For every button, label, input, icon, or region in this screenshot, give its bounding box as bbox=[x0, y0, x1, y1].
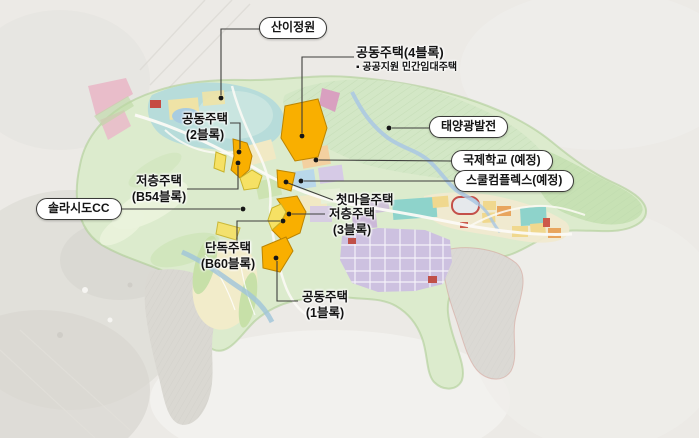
label-apt-block2: 공동주택 (2블록) bbox=[179, 112, 231, 143]
label-low-rise-3-line1: 저층주택 bbox=[326, 207, 378, 223]
label-apt-block1-line1: 공동주택 bbox=[299, 290, 351, 306]
label-solar-power: 태양광발전 bbox=[429, 116, 508, 138]
label-apt-block2-line2: (2블록) bbox=[179, 128, 231, 144]
label-sani-garden: 산이정원 bbox=[259, 17, 327, 39]
label-low-rise-b54-line2: (B54블록) bbox=[129, 190, 189, 206]
label-apt-block4-title: 공동주택(4블록) bbox=[356, 45, 457, 61]
masterplan-figure: 산이정원 태양광발전 국제학교 (예정) 스쿨컴플렉스(예정) 솔라시도CC 공… bbox=[0, 0, 699, 438]
label-low-rise-b54-line1: 저층주택 bbox=[129, 174, 189, 190]
label-apt-block1-line2: (1블록) bbox=[299, 306, 351, 322]
label-single-b60: 단독주택 (B60블록) bbox=[198, 241, 258, 272]
label-single-b60-line2: (B60블록) bbox=[198, 257, 258, 273]
label-low-rise-3-line2: (3블록) bbox=[326, 223, 378, 239]
label-apt-block4: 공동주택(4블록) ▪ 공공지원 민간임대주택 bbox=[356, 45, 457, 75]
block-b54-yellow2 bbox=[214, 152, 226, 172]
label-apt-block2-line1: 공동주택 bbox=[179, 112, 231, 128]
label-low-rise-b54: 저층주택 (B54블록) bbox=[129, 174, 189, 205]
label-apt-block4-note: ▪ 공공지원 민간임대주택 bbox=[356, 62, 457, 75]
label-single-b60-line1: 단독주택 bbox=[198, 241, 258, 257]
label-school-complex: 스쿨컴플렉스(예정) bbox=[454, 170, 574, 192]
label-low-rise-3: 저층주택 (3블록) bbox=[326, 207, 378, 238]
label-intl-school: 국제학교 (예정) bbox=[451, 150, 553, 172]
label-solaseado-cc: 솔라시도CC bbox=[36, 198, 122, 220]
label-apt-block1: 공동주택 (1블록) bbox=[299, 290, 351, 321]
